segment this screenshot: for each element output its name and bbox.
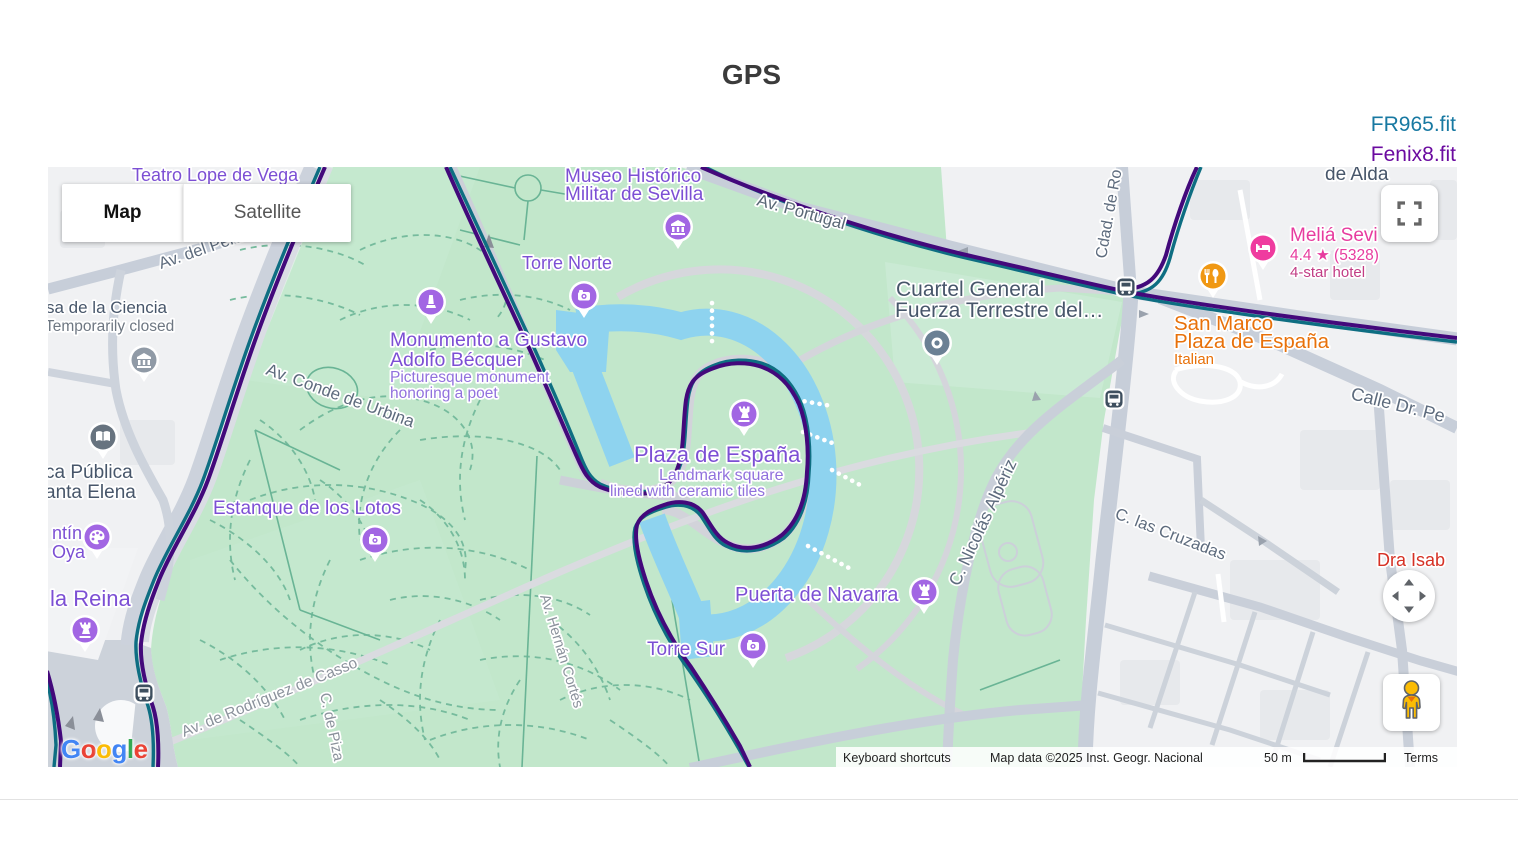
svg-text:de Alda: de Alda: [1325, 167, 1389, 185]
svg-text:Temporarily closed: Temporarily closed: [48, 318, 174, 335]
svg-text:4.4 ★ (5328): 4.4 ★ (5328): [1290, 247, 1379, 264]
svg-text:Italian: Italian: [1174, 351, 1214, 368]
svg-text:sa de la Ciencia: sa de la Ciencia: [48, 298, 168, 317]
svg-text:Plaza de España: Plaza de España: [1174, 330, 1330, 353]
svg-text:Plaza de España: Plaza de España: [634, 442, 801, 467]
svg-text:Landmark square: Landmark square: [659, 467, 784, 484]
svg-text:Cuartel General: Cuartel General: [896, 278, 1044, 301]
svg-text:Oya: Oya: [52, 542, 86, 562]
svg-text:4-star hotel: 4-star hotel: [1290, 264, 1365, 281]
svg-text:Torre Sur: Torre Sur: [647, 639, 726, 660]
svg-text:lined with ceramic tiles: lined with ceramic tiles: [610, 483, 765, 500]
svg-text:Puerta de Navarra: Puerta de Navarra: [735, 584, 899, 606]
svg-text:Fuerza Terrestre del…: Fuerza Terrestre del…: [895, 299, 1104, 322]
svg-text:Estanque de los Lotos: Estanque de los Lotos: [213, 498, 401, 519]
svg-text:Adolfo Bécquer: Adolfo Bécquer: [390, 349, 524, 371]
svg-text:Picturesque monument: Picturesque monument: [390, 369, 550, 386]
svg-text:Meliá Sevi: Meliá Sevi: [1290, 225, 1378, 246]
svg-text:honoring a poet: honoring a poet: [390, 385, 498, 402]
svg-text:la Reina: la Reina: [50, 586, 131, 611]
svg-text:ca Pública: ca Pública: [48, 462, 133, 483]
svg-text:Militar de Sevilla: Militar de Sevilla: [565, 184, 704, 205]
svg-text:Teatro Lope de Vega: Teatro Lope de Vega: [132, 167, 299, 185]
svg-text:Dra Isab: Dra Isab: [1377, 550, 1445, 570]
svg-text:Torre Norte: Torre Norte: [522, 253, 612, 273]
svg-text:ntín: ntín: [52, 523, 82, 543]
svg-text:Monumento a Gustavo: Monumento a Gustavo: [390, 329, 587, 351]
svg-text:anta Elena: anta Elena: [48, 482, 136, 503]
